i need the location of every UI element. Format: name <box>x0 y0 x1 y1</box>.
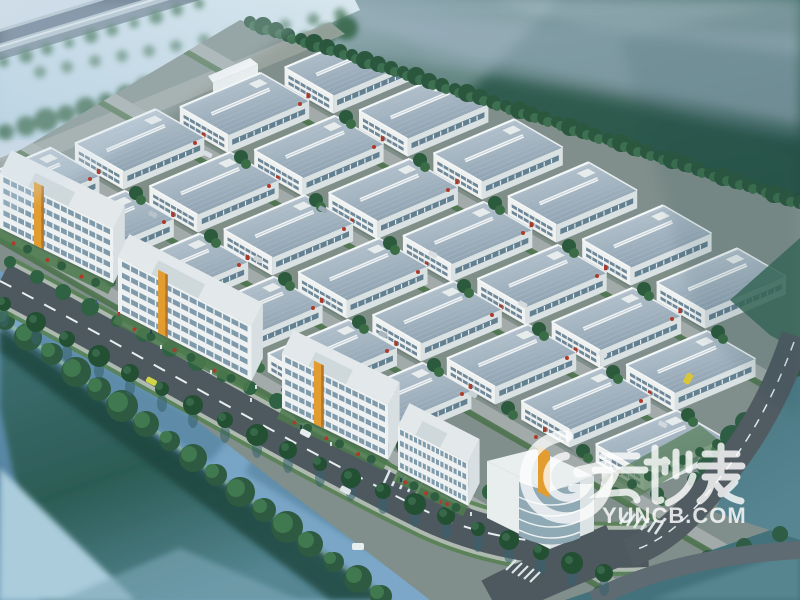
svg-text:YUNCB.COM: YUNCB.COM <box>602 503 747 528</box>
